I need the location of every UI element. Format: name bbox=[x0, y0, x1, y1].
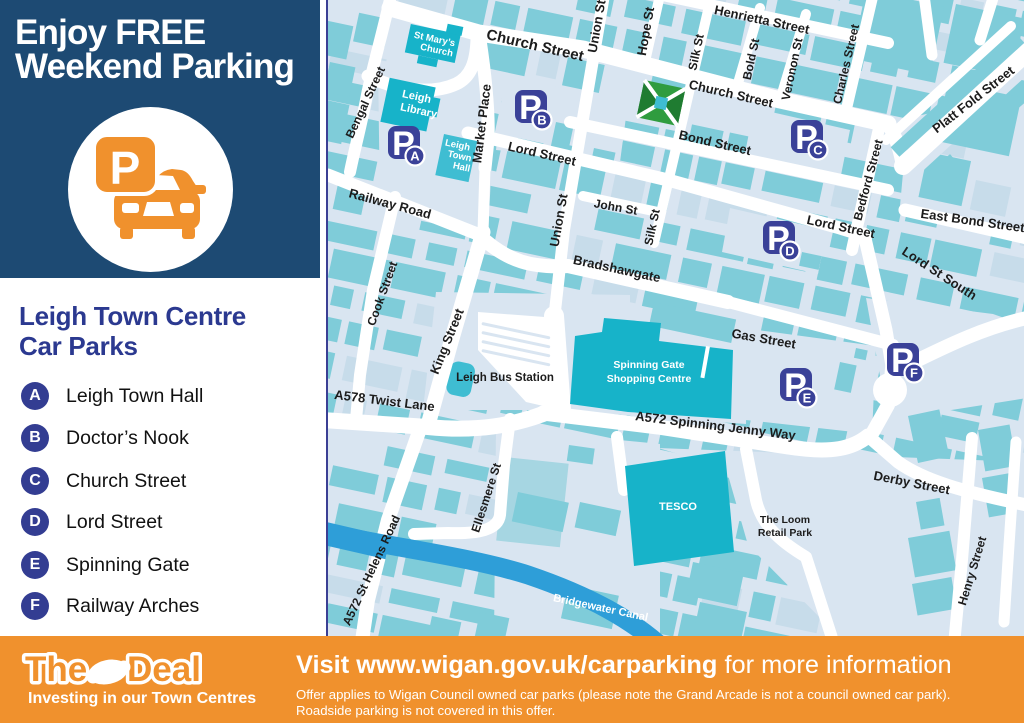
svg-text:Shopping Centre: Shopping Centre bbox=[607, 373, 692, 385]
svg-text:D: D bbox=[785, 244, 794, 259]
svg-text:Deal: Deal bbox=[127, 650, 201, 689]
svg-text:TESCO: TESCO bbox=[659, 501, 697, 513]
svg-text:B: B bbox=[537, 113, 546, 128]
svg-text:C: C bbox=[813, 143, 823, 158]
svg-text:Retail Park: Retail Park bbox=[758, 527, 812, 539]
svg-text:The Loom: The Loom bbox=[760, 514, 810, 526]
svg-text:A: A bbox=[410, 149, 420, 164]
svg-text:Leigh Bus Station: Leigh Bus Station bbox=[456, 372, 554, 384]
svg-text:P: P bbox=[110, 142, 141, 194]
svg-text:Spinning Gate: Spinning Gate bbox=[613, 359, 684, 371]
svg-text:The: The bbox=[25, 650, 87, 689]
svg-text:F: F bbox=[910, 366, 918, 381]
svg-text:E: E bbox=[803, 391, 812, 406]
